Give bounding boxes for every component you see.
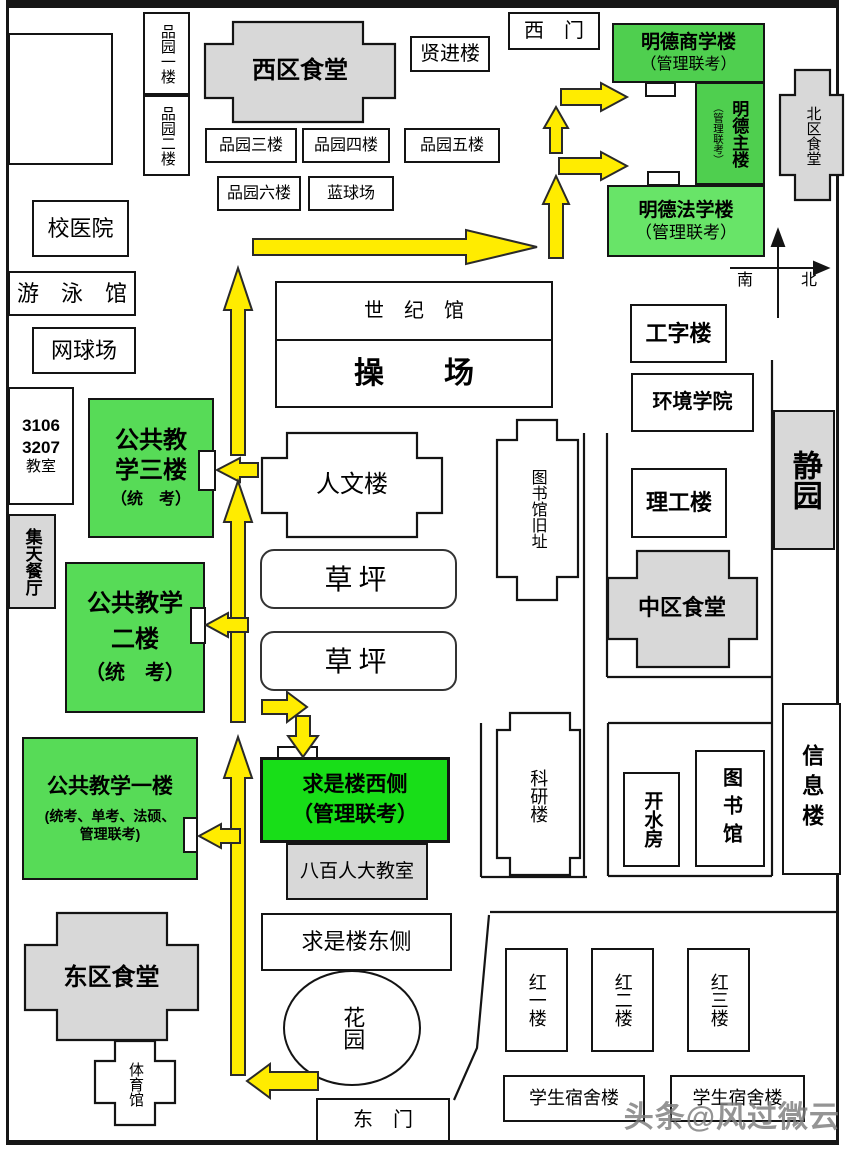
arrow-north-to-faxue (543, 176, 569, 258)
route-arrows (0, 0, 845, 1149)
arrow-north-mid-left (224, 481, 252, 722)
arrow-north-small (544, 107, 568, 153)
arrow-east-upper (561, 83, 627, 111)
campus-exam-map: 品园一楼 品园二楼 贤进楼 西 门 品园三楼 品园四楼 品园五楼 品园六楼 蓝球… (0, 0, 845, 1149)
arrow-north-upper-left (224, 268, 252, 455)
arrow-east-lower (559, 152, 627, 180)
arrow-west-to-gongjiao3 (217, 458, 258, 482)
arrow-south-to-qiushi-door (288, 716, 318, 757)
arrow-west-bottom (247, 1064, 318, 1098)
arrow-north-lower-left (224, 737, 252, 1075)
arrow-east-long (253, 230, 537, 264)
watermark: 头条@风过微云 (555, 1092, 840, 1138)
